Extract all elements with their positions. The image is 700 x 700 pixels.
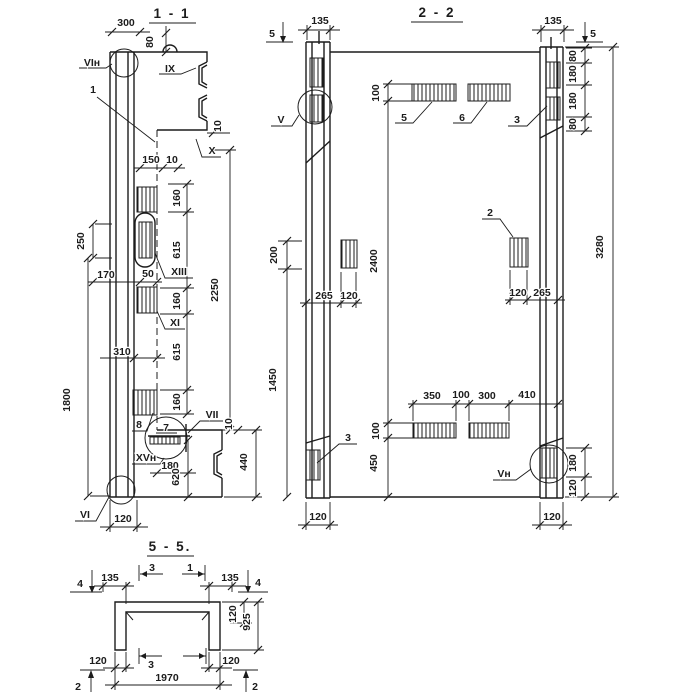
- dim-150: 150: [142, 154, 160, 166]
- section-5-5-dim-ticks: [99, 582, 262, 689]
- dim-100-bottom: 100: [370, 422, 382, 440]
- section-2-2-hatch-marks: [306, 58, 560, 480]
- dim-1970: 1970: [155, 672, 179, 684]
- dim-120-top-s5: 120: [227, 605, 239, 623]
- label-pos-5: 5: [401, 112, 407, 124]
- label-v: V: [277, 114, 284, 126]
- dim-135-left-s5: 135: [101, 572, 119, 584]
- label-cut-2-right: 2: [252, 681, 258, 693]
- label-vii: VII: [206, 409, 219, 421]
- dim-1800: 1800: [61, 388, 73, 412]
- dim-160-b: 160: [171, 292, 183, 310]
- label-xiii: XIII: [171, 266, 187, 278]
- dim-310: 310: [113, 346, 131, 358]
- label-xv-n: XVн: [136, 452, 156, 464]
- dim-120-bottom-right-s5: 120: [222, 655, 240, 667]
- dim-50: 50: [142, 268, 154, 280]
- section-5-5: 5 - 5. 4 135 3 1 135 4 120 925 120 3 120…: [70, 539, 268, 693]
- section-2-2: 2 - 2 5 135 135 5 80 180 180 80 V 100 5 …: [266, 5, 619, 530]
- label-pos-1: 1: [90, 84, 96, 96]
- dim-160-a: 160: [171, 189, 183, 207]
- label-cut-5-left: 5: [269, 28, 275, 40]
- label-cut-4-left: 4: [77, 578, 83, 590]
- dim-10-bottom: 10: [223, 418, 235, 430]
- label-pos-7: 7: [163, 422, 169, 434]
- dim-135-left: 135: [311, 15, 329, 27]
- label-cut-4-right: 4: [255, 577, 261, 589]
- label-pos-3-right: 3: [514, 114, 520, 126]
- label-cut-2-left: 2: [75, 681, 81, 693]
- dim-100-top: 100: [370, 84, 382, 102]
- dim-120-s1: 120: [114, 513, 132, 525]
- dim-80: 80: [144, 36, 156, 48]
- section-1-1-title: 1 - 1: [153, 6, 190, 21]
- dim-2250: 2250: [209, 278, 221, 302]
- dim-120-bottom-left-s5: 120: [89, 655, 107, 667]
- dim-450: 450: [368, 454, 380, 472]
- dim-120-bottom-left: 120: [309, 511, 327, 523]
- dim-925: 925: [241, 613, 253, 631]
- dim-265-left: 265: [315, 290, 333, 302]
- section-1-1: 1 - 1 300 80 VIн 1 IX 10 X 150 10 160 61…: [61, 6, 262, 532]
- label-x: X: [208, 145, 215, 157]
- dim-180-c: 180: [567, 454, 579, 472]
- label-cut-3-top: 3: [149, 562, 155, 574]
- dim-615-b: 615: [171, 343, 183, 361]
- dim-620: 620: [170, 468, 182, 486]
- label-cut-3-bottom: 3: [148, 659, 154, 671]
- section-5-5-title: 5 - 5.: [149, 539, 192, 554]
- dim-615-a: 615: [171, 241, 183, 259]
- section-2-2-title: 2 - 2: [418, 5, 455, 20]
- dim-300-s2: 300: [478, 390, 496, 402]
- dim-200: 200: [268, 246, 280, 264]
- dim-120-bottom-right: 120: [543, 511, 561, 523]
- dim-80-a: 80: [567, 50, 579, 62]
- dim-170: 170: [97, 269, 115, 281]
- dim-265-right: 265: [533, 287, 551, 299]
- dim-250: 250: [75, 232, 87, 250]
- dim-300: 300: [117, 17, 135, 29]
- dim-10-mid: 10: [166, 154, 178, 166]
- dim-350: 350: [423, 390, 441, 402]
- label-pos-8: 8: [136, 419, 142, 431]
- label-v-n: Vн: [497, 468, 510, 480]
- dim-3280: 3280: [594, 235, 606, 259]
- label-pos-3-left: 3: [345, 432, 351, 444]
- technical-drawing: 1 - 1 300 80 VIн 1 IX 10 X 150 10 160 61…: [0, 0, 700, 700]
- section-5-5-outline: [115, 602, 220, 650]
- dim-135-right-s5: 135: [221, 572, 239, 584]
- dim-440: 440: [238, 453, 250, 471]
- dim-100-mid: 100: [452, 389, 470, 401]
- label-pos-6: 6: [459, 112, 465, 124]
- label-vi-bottom: VI: [80, 509, 90, 521]
- dim-410: 410: [518, 389, 536, 401]
- blueprint-sheet: 1 - 1 300 80 VIн 1 IX 10 X 150 10 160 61…: [0, 0, 700, 700]
- dim-1450: 1450: [267, 368, 279, 392]
- dim-80-b: 80: [567, 118, 579, 130]
- dim-180-a: 180: [567, 65, 579, 83]
- label-vi-n-top: VIн: [84, 57, 100, 69]
- dim-135-right: 135: [544, 15, 562, 27]
- dim-10-top: 10: [212, 120, 224, 132]
- dim-2400: 2400: [368, 249, 380, 273]
- dim-120-c: 120: [567, 479, 579, 497]
- label-cut-5-right: 5: [590, 28, 596, 40]
- dim-160-c: 160: [171, 393, 183, 411]
- label-xi: XI: [170, 317, 180, 329]
- label-pos-2: 2: [487, 207, 493, 219]
- label-ix: IX: [165, 63, 175, 75]
- dim-120-right: 120: [509, 287, 527, 299]
- label-cut-1-top: 1: [187, 562, 193, 574]
- dim-120-left: 120: [340, 290, 358, 302]
- dim-180-b: 180: [567, 92, 579, 110]
